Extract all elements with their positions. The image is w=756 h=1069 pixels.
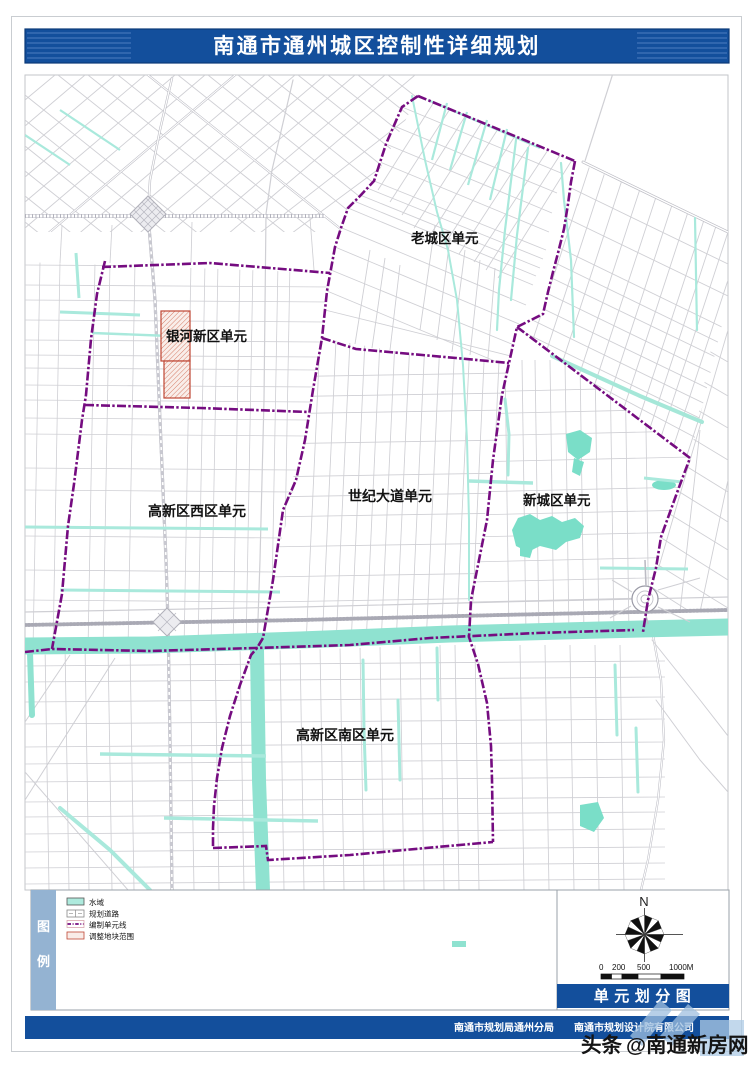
svg-text:高新区西区单元: 高新区西区单元 (148, 503, 246, 519)
svg-text:单元划分图: 单元划分图 (594, 987, 697, 1005)
svg-text:规划道路: 规划道路 (89, 909, 119, 919)
svg-text:南通市通州城区控制性详细规划: 南通市通州城区控制性详细规划 (213, 34, 541, 58)
svg-text:调整地块范围: 调整地块范围 (89, 931, 134, 941)
svg-text:南通市规划局通州分局: 南通市规划局通州分局 (454, 1021, 554, 1034)
svg-text:老城区单元: 老城区单元 (411, 230, 479, 246)
svg-text:N: N (639, 894, 648, 909)
svg-text:新城区单元: 新城区单元 (523, 492, 591, 508)
svg-text:1000M: 1000M (669, 963, 694, 972)
svg-text:图: 图 (37, 919, 50, 934)
svg-text:银河新区单元: 银河新区单元 (166, 328, 247, 344)
svg-text:200: 200 (612, 963, 626, 972)
svg-text:高新区南区单元: 高新区南区单元 (296, 727, 394, 743)
svg-text:编制单元线: 编制单元线 (89, 920, 127, 930)
svg-text:头条: 头条 (581, 1033, 622, 1057)
svg-text:世纪大道单元: 世纪大道单元 (348, 488, 432, 504)
svg-text:水域: 水域 (89, 897, 104, 907)
svg-text:例: 例 (37, 954, 50, 969)
svg-text:500: 500 (637, 963, 651, 972)
svg-text:@南通新房网: @南通新房网 (626, 1033, 749, 1057)
svg-text:0: 0 (599, 963, 604, 972)
